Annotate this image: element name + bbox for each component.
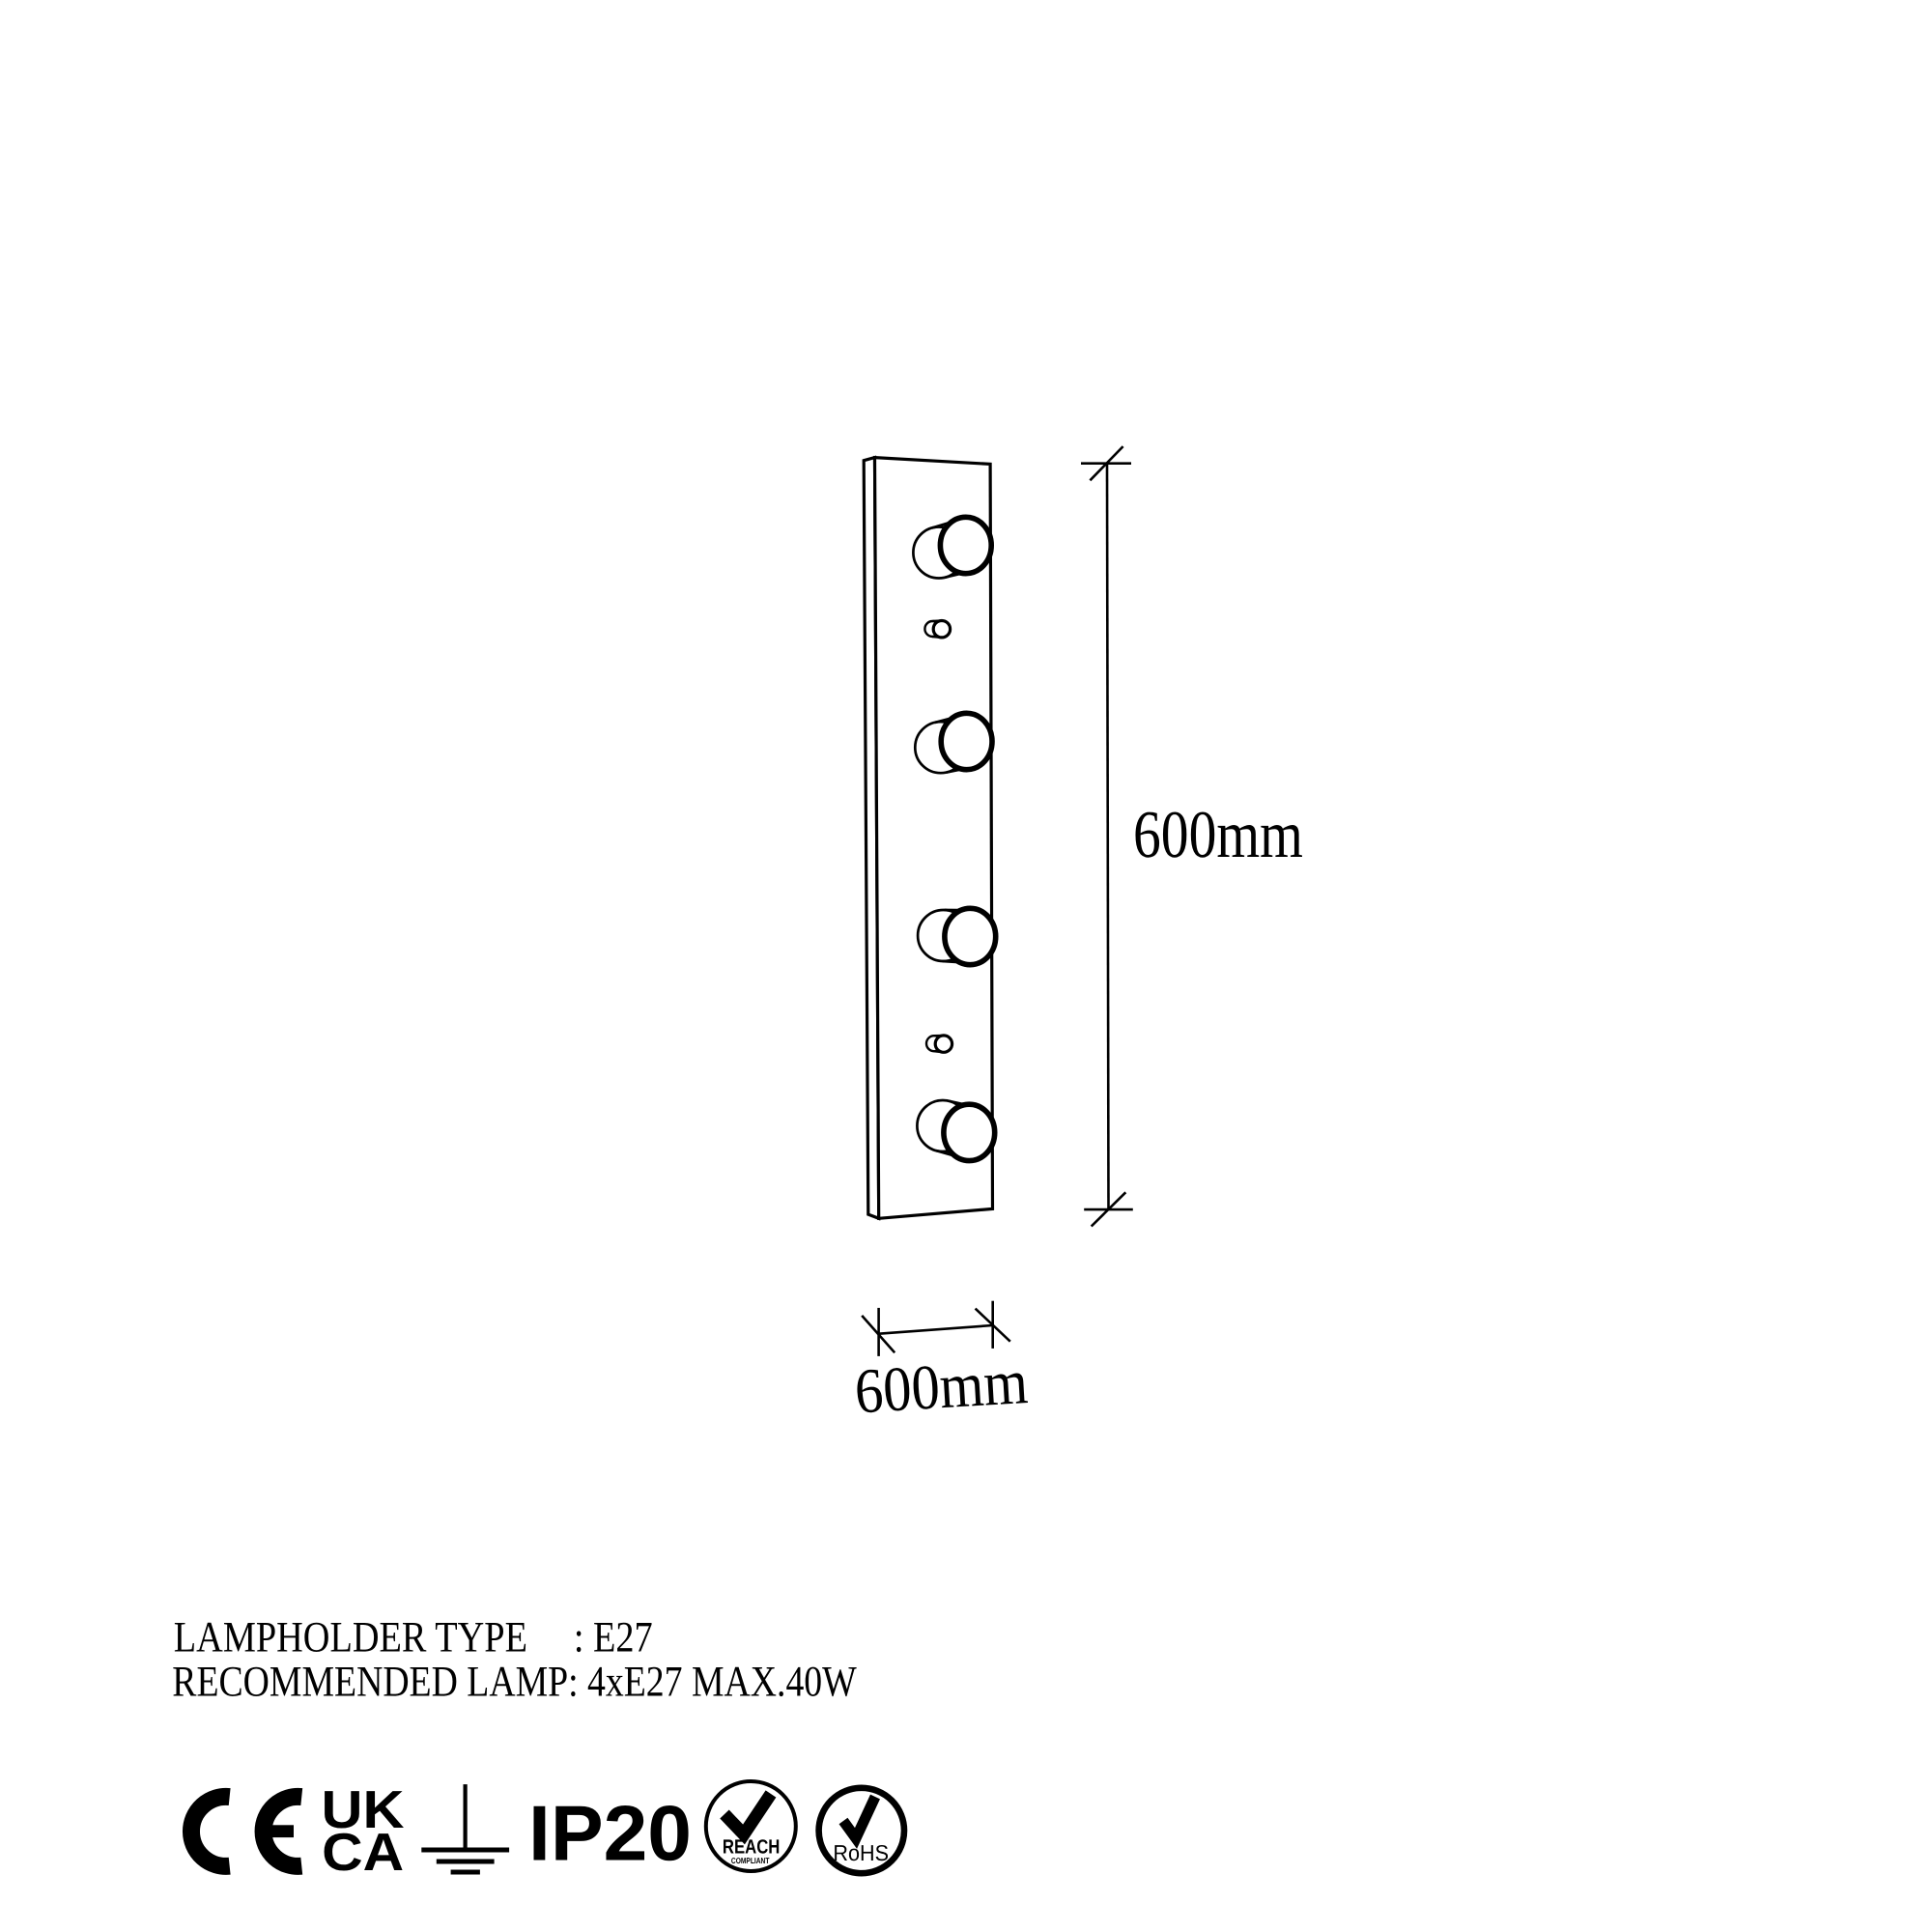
svg-text:CA: CA (322, 1822, 404, 1882)
svg-text:IP20: IP20 (528, 1791, 692, 1878)
svg-text:RECOMMENDED LAMP: 4xE27 MAX.40: RECOMMENDED LAMP: 4xE27 MAX.40W (172, 1657, 857, 1705)
svg-text:600mm: 600mm (853, 1347, 1030, 1427)
svg-text:LAMPHOLDER TYPE : E27: LAMPHOLDER TYPE : E27 (174, 1613, 653, 1662)
svg-text:COMPLIANT: COMPLIANT (731, 1856, 770, 1865)
svg-text:RoHS: RoHS (833, 1840, 889, 1865)
svg-text:600mm: 600mm (1133, 798, 1303, 872)
